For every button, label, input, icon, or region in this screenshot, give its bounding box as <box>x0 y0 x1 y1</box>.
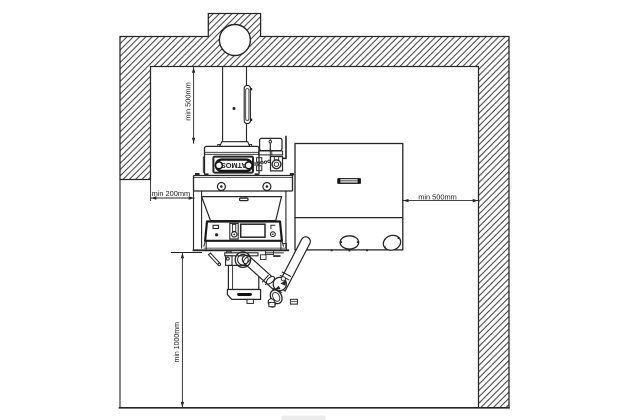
svg-text:min 500mm: min 500mm <box>184 82 193 121</box>
svg-text:min 1000mm: min 1000mm <box>174 322 181 363</box>
svg-text:min 200mm: min 200mm <box>152 189 191 198</box>
svg-text:min 500mm: min 500mm <box>418 193 457 202</box>
svg-text:ATMOS: ATMOS <box>221 161 247 170</box>
